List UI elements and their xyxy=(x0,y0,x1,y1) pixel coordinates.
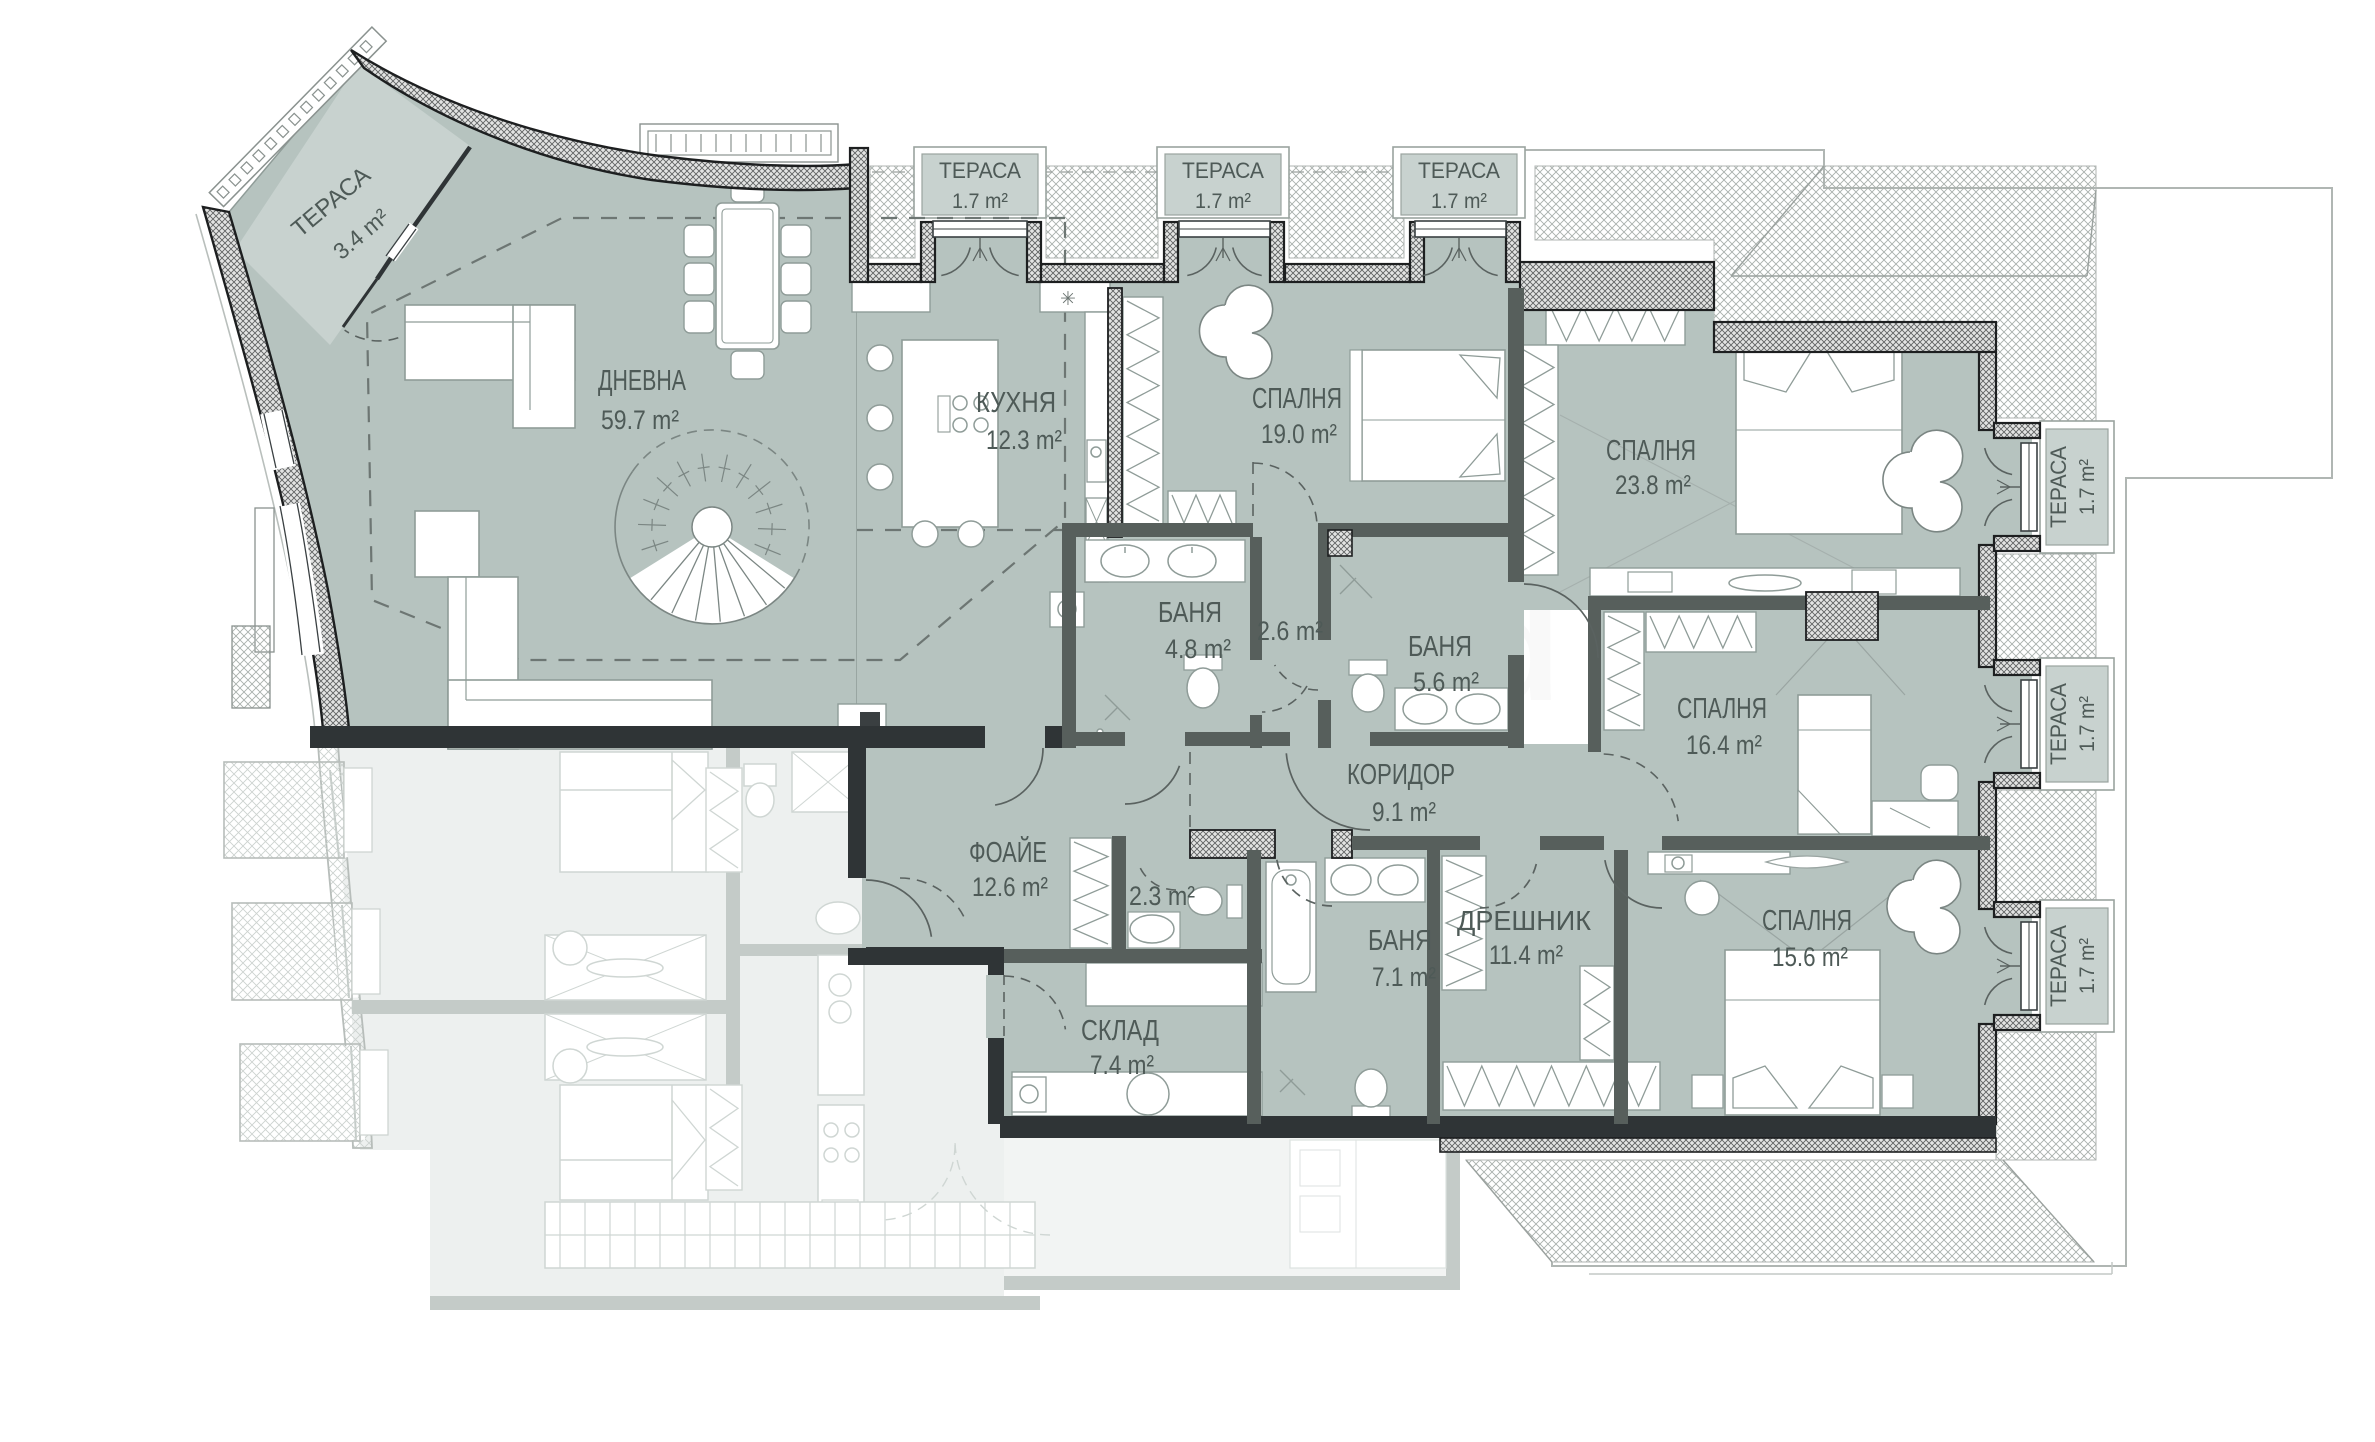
svg-text:5.6 m²: 5.6 m² xyxy=(1413,667,1479,697)
svg-text:12.3 m²: 12.3 m² xyxy=(986,425,1062,455)
svg-text:1.7 m²: 1.7 m² xyxy=(1431,190,1487,213)
svg-text:1.7 m²: 1.7 m² xyxy=(952,190,1008,213)
svg-text:2.6 m²: 2.6 m² xyxy=(1257,616,1323,646)
svg-text:ТЕРАСА: ТЕРАСА xyxy=(2046,683,2071,765)
svg-text:7.4 m²: 7.4 m² xyxy=(1090,1050,1154,1080)
svg-text:16.4 m²: 16.4 m² xyxy=(1686,730,1762,760)
svg-text:КУХНЯ: КУХНЯ xyxy=(976,387,1056,419)
svg-text:ДНЕВНА: ДНЕВНА xyxy=(598,365,686,397)
svg-text:✳: ✳ xyxy=(1060,289,1076,310)
svg-text:ТЕРАСА: ТЕРАСА xyxy=(2046,446,2071,528)
svg-text:ФОАЙЕ: ФОАЙЕ xyxy=(969,835,1047,869)
svg-text:СПАЛНЯ: СПАЛНЯ xyxy=(1606,435,1696,467)
svg-text:7.1 m²: 7.1 m² xyxy=(1372,962,1436,992)
svg-text:23.8 m²: 23.8 m² xyxy=(1615,470,1691,500)
svg-text:2.3 m²: 2.3 m² xyxy=(1129,881,1195,911)
svg-text:ТЕРАСА: ТЕРАСА xyxy=(1418,158,1500,183)
svg-text:ТЕРАСА: ТЕРАСА xyxy=(1182,158,1264,183)
svg-text:ДРЕШНИК: ДРЕШНИК xyxy=(1457,905,1592,936)
svg-text:БАНЯ: БАНЯ xyxy=(1408,631,1472,663)
svg-text:СПАЛНЯ: СПАЛНЯ xyxy=(1677,693,1767,725)
svg-text:ТЕРАСА: ТЕРАСА xyxy=(939,158,1021,183)
svg-text:9.1 m²: 9.1 m² xyxy=(1372,797,1436,827)
svg-text:БАНЯ: БАНЯ xyxy=(1158,597,1222,629)
svg-text:1.7 m²: 1.7 m² xyxy=(2076,459,2099,515)
svg-text:11.4 m²: 11.4 m² xyxy=(1489,940,1563,970)
svg-text:59.7 m²: 59.7 m² xyxy=(601,405,679,435)
svg-text:15.6 m²: 15.6 m² xyxy=(1772,942,1848,972)
svg-text:4.8 m²: 4.8 m² xyxy=(1165,634,1231,664)
svg-text:1.7 m²: 1.7 m² xyxy=(2076,938,2099,994)
svg-text:СПАЛНЯ: СПАЛНЯ xyxy=(1252,383,1342,415)
svg-text:19.0 m²: 19.0 m² xyxy=(1261,419,1337,449)
svg-text:СКЛАД: СКЛАД xyxy=(1081,1015,1159,1047)
svg-text:БАНЯ: БАНЯ xyxy=(1368,925,1432,957)
svg-text:1.7 m²: 1.7 m² xyxy=(2076,696,2099,752)
svg-text:КОРИДОР: КОРИДОР xyxy=(1347,759,1455,791)
svg-text:СПАЛНЯ: СПАЛНЯ xyxy=(1762,905,1852,937)
svg-text:ТЕРАСА: ТЕРАСА xyxy=(2046,925,2071,1007)
svg-text:1.7 m²: 1.7 m² xyxy=(1195,190,1251,213)
svg-text:12.6 m²: 12.6 m² xyxy=(972,872,1048,902)
